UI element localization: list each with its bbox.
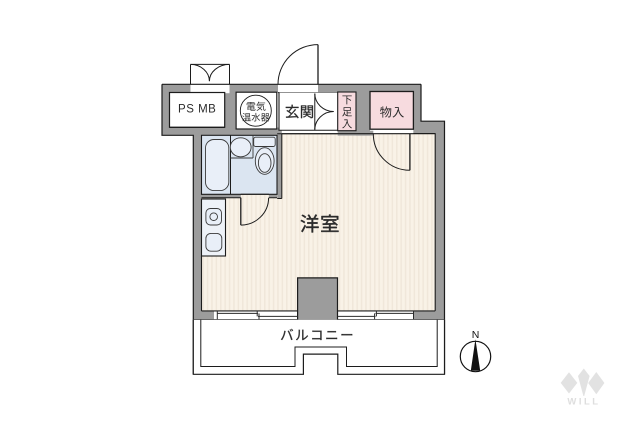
- svg-text:WILL: WILL: [567, 397, 600, 408]
- svg-text:PS MB: PS MB: [178, 104, 216, 116]
- svg-text:N: N: [472, 329, 480, 341]
